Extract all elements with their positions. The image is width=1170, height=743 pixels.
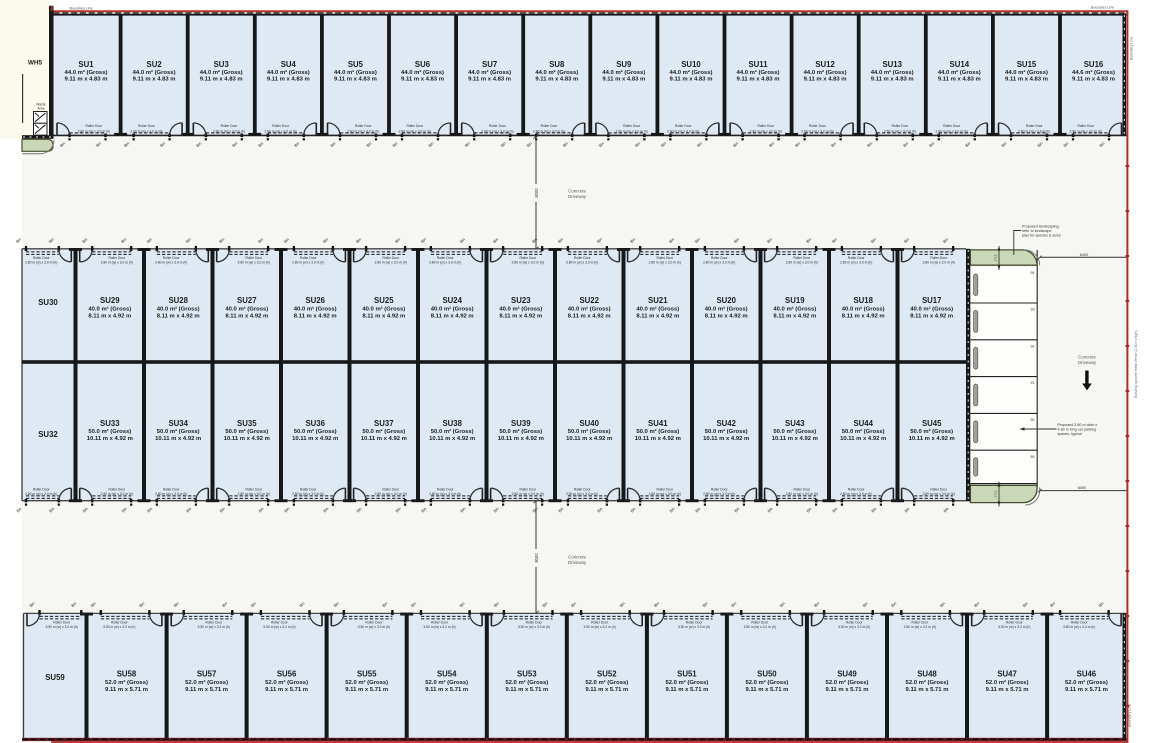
svg-text:2.60 m (w) x 3.0 m (h): 2.60 m (w) x 3.0 m (h) bbox=[935, 129, 967, 133]
svg-text:2.80 m (w) x 3.0 m (h): 2.80 m (w) x 3.0 m (h) bbox=[703, 492, 735, 496]
svg-text:Boundary Line: Boundary Line bbox=[1128, 704, 1132, 727]
svg-text:40.0 m² (Gross): 40.0 m² (Gross) bbox=[431, 305, 474, 312]
svg-text:SU28: SU28 bbox=[168, 296, 188, 305]
svg-text:8.11 m x 4.92 m: 8.11 m x 4.92 m bbox=[705, 314, 748, 320]
svg-text:9.11 m x 5.71 m: 9.11 m x 5.71 m bbox=[505, 687, 548, 693]
svg-text:SU13: SU13 bbox=[882, 60, 902, 69]
svg-text:50.0 m² (Gross): 50.0 m² (Gross) bbox=[705, 428, 748, 435]
svg-text:2.60 m (w) x 3.0 m (h): 2.60 m (w) x 3.0 m (h) bbox=[78, 129, 110, 133]
svg-text:Roller Door: Roller Door bbox=[656, 256, 674, 260]
svg-text:Boundary Line: Boundary Line bbox=[1091, 5, 1114, 9]
svg-text:52.0 m² (Gross): 52.0 m² (Gross) bbox=[986, 679, 1029, 686]
svg-text:10.11 m x 4.92 m: 10.11 m x 4.92 m bbox=[703, 436, 749, 442]
svg-text:Concrete: Concrete bbox=[568, 555, 586, 560]
svg-text:50.0 m² (Gross): 50.0 m² (Gross) bbox=[499, 428, 542, 435]
svg-text:9.11 m x 4.83 m: 9.11 m x 4.83 m bbox=[804, 77, 847, 83]
svg-text:Driveway: Driveway bbox=[568, 560, 587, 565]
svg-text:2.80 m (w) x 3.0 m (h): 2.80 m (w) x 3.0 m (h) bbox=[238, 260, 270, 264]
svg-text:SU40: SU40 bbox=[579, 419, 599, 428]
svg-text:SU26: SU26 bbox=[305, 296, 325, 305]
svg-text:Roller Door: Roller Door bbox=[431, 621, 449, 625]
svg-text:8.11 m x 4.92 m: 8.11 m x 4.92 m bbox=[499, 314, 542, 320]
svg-text:10.11 m x 4.92 m: 10.11 m x 4.92 m bbox=[224, 436, 270, 442]
svg-text:Roller Door: Roller Door bbox=[591, 621, 609, 625]
svg-text:40.0 m² (Gross): 40.0 m² (Gross) bbox=[910, 305, 953, 312]
svg-text:Roller Door: Roller Door bbox=[848, 487, 866, 491]
svg-text:10.11 m x 4.92 m: 10.11 m x 4.92 m bbox=[566, 436, 612, 442]
svg-text:SU11: SU11 bbox=[748, 60, 768, 69]
svg-text:3.50 m (w) x 3.2 m (h): 3.50 m (w) x 3.2 m (h) bbox=[263, 625, 295, 629]
svg-text:89: 89 bbox=[1031, 455, 1035, 459]
svg-text:44.0 m² (Gross): 44.0 m² (Gross) bbox=[804, 69, 847, 76]
svg-text:10.11 m x 4.92 m: 10.11 m x 4.92 m bbox=[429, 436, 475, 442]
svg-text:2.80 m (w) x 3.0 m (h): 2.80 m (w) x 3.0 m (h) bbox=[566, 492, 598, 496]
svg-text:8.11 m x 4.92 m: 8.11 m x 4.92 m bbox=[431, 314, 474, 320]
svg-text:50.0 m² (Gross): 50.0 m² (Gross) bbox=[568, 428, 611, 435]
svg-text:SU1: SU1 bbox=[78, 60, 94, 69]
svg-text:50.0 m² (Gross): 50.0 m² (Gross) bbox=[294, 428, 337, 435]
svg-text:2.80 m (w) x 3.0 m (h): 2.80 m (w) x 3.0 m (h) bbox=[512, 492, 544, 496]
svg-text:52.0 m² (Gross): 52.0 m² (Gross) bbox=[585, 679, 628, 686]
svg-text:Roller Door: Roller Door bbox=[574, 487, 592, 491]
svg-text:9.11 m x 5.71 m: 9.11 m x 5.71 m bbox=[906, 687, 949, 693]
svg-text:9.11 m x 5.71 m: 9.11 m x 5.71 m bbox=[585, 687, 628, 693]
svg-text:10.11 m x 4.92 m: 10.11 m x 4.92 m bbox=[155, 436, 201, 442]
svg-text:93: 93 bbox=[1031, 308, 1035, 312]
svg-text:SU41: SU41 bbox=[648, 419, 668, 428]
svg-text:SU8: SU8 bbox=[549, 60, 565, 69]
svg-text:Driveway: Driveway bbox=[568, 194, 587, 199]
svg-text:44.0 m² (Gross): 44.0 m² (Gross) bbox=[334, 69, 377, 76]
svg-text:Roller Door: Roller Door bbox=[623, 124, 641, 128]
svg-text:SU39: SU39 bbox=[511, 419, 531, 428]
svg-text:SU12: SU12 bbox=[815, 60, 835, 69]
svg-text:9.11 m x 4.83 m: 9.11 m x 4.83 m bbox=[200, 77, 243, 83]
svg-text:6400: 6400 bbox=[1078, 486, 1086, 490]
svg-text:40.0 m² (Gross): 40.0 m² (Gross) bbox=[88, 305, 131, 312]
svg-text:44.0 m² (Gross): 44.0 m² (Gross) bbox=[133, 69, 176, 76]
svg-text:44.0 m² (Gross): 44.0 m² (Gross) bbox=[1005, 69, 1048, 76]
svg-text:Proposed 2.60 m wide x: Proposed 2.60 m wide x bbox=[1058, 423, 1098, 427]
svg-text:91: 91 bbox=[1031, 381, 1035, 385]
svg-text:Roller Door: Roller Door bbox=[911, 621, 929, 625]
svg-text:40.0 m² (Gross): 40.0 m² (Gross) bbox=[294, 305, 337, 312]
svg-text:50.0 m² (Gross): 50.0 m² (Gross) bbox=[157, 428, 200, 435]
svg-text:52.0 m² (Gross): 52.0 m² (Gross) bbox=[1065, 679, 1108, 686]
svg-text:44.0 m² (Gross): 44.0 m² (Gross) bbox=[65, 69, 108, 76]
svg-text:3.50 m (w) x 3.2 m (h): 3.50 m (w) x 3.2 m (h) bbox=[518, 625, 550, 629]
svg-text:Roller Door: Roller Door bbox=[943, 124, 961, 128]
svg-text:9.11 m x 5.71 m: 9.11 m x 5.71 m bbox=[425, 687, 468, 693]
svg-text:SU14: SU14 bbox=[950, 60, 970, 69]
svg-text:SU4: SU4 bbox=[281, 60, 297, 69]
svg-text:52.0 m² (Gross): 52.0 m² (Gross) bbox=[665, 679, 708, 686]
svg-text:2.80 m (w) x 3.0 m (h): 2.80 m (w) x 3.0 m (h) bbox=[375, 260, 407, 264]
svg-text:SU27: SU27 bbox=[237, 296, 257, 305]
svg-text:90: 90 bbox=[1031, 418, 1035, 422]
svg-text:40.0 m² (Gross): 40.0 m² (Gross) bbox=[842, 305, 885, 312]
svg-text:WH5: WH5 bbox=[28, 60, 43, 67]
svg-text:3.50 m (w) x 3.2 m (h): 3.50 m (w) x 3.2 m (h) bbox=[46, 625, 78, 629]
svg-text:44.6 m² (Gross): 44.6 m² (Gross) bbox=[1072, 69, 1115, 76]
svg-text:SU50: SU50 bbox=[757, 670, 777, 679]
svg-text:Roller Door: Roller Door bbox=[163, 487, 181, 491]
svg-text:3.50 m (w) x 3.2 m (h): 3.50 m (w) x 3.2 m (h) bbox=[998, 625, 1030, 629]
svg-text:SU47: SU47 bbox=[997, 670, 1017, 679]
svg-text:9.11 m x 4.83 m: 9.11 m x 4.83 m bbox=[1005, 77, 1048, 83]
svg-text:10.11 m x 4.92 m: 10.11 m x 4.92 m bbox=[909, 436, 955, 442]
svg-text:2.80 m (w) x 3.0 m (h): 2.80 m (w) x 3.0 m (h) bbox=[649, 260, 681, 264]
svg-text:SU44: SU44 bbox=[853, 419, 873, 428]
svg-text:SU20: SU20 bbox=[716, 296, 736, 305]
svg-text:2.60 m (w) x 3.0 m (h): 2.60 m (w) x 3.0 m (h) bbox=[130, 129, 162, 133]
svg-text:2.80 m (w) x 3.0 m (h): 2.80 m (w) x 3.0 m (h) bbox=[649, 492, 681, 496]
svg-text:Roller Door: Roller Door bbox=[300, 487, 318, 491]
svg-text:SU51: SU51 bbox=[677, 670, 697, 679]
svg-text:8.11 m x 4.92 m: 8.11 m x 4.92 m bbox=[842, 314, 885, 320]
svg-text:2.60 m (w) x 3.0 m (h): 2.60 m (w) x 3.0 m (h) bbox=[884, 129, 916, 133]
svg-text:8000: 8000 bbox=[534, 188, 539, 198]
svg-text:9.11 m x 4.83 m: 9.11 m x 4.83 m bbox=[334, 77, 377, 83]
svg-text:Roller Door: Roller Door bbox=[382, 487, 400, 491]
svg-text:Roller Door: Roller Door bbox=[1071, 621, 1089, 625]
svg-text:Roller Door: Roller Door bbox=[85, 124, 103, 128]
svg-text:44.0 m² (Gross): 44.0 m² (Gross) bbox=[468, 69, 511, 76]
svg-text:Proposed landscaping,: Proposed landscaping, bbox=[1022, 225, 1060, 229]
svg-text:3.50 m (w) x 3.2 m (h): 3.50 m (w) x 3.2 m (h) bbox=[678, 625, 710, 629]
svg-text:2.60 m (w) x 3.0 m (h): 2.60 m (w) x 3.0 m (h) bbox=[213, 129, 245, 133]
svg-text:Roller Door: Roller Door bbox=[930, 487, 948, 491]
svg-text:2.80 m (w) x 3.0 m (h): 2.80 m (w) x 3.0 m (h) bbox=[25, 492, 57, 496]
svg-text:SU30: SU30 bbox=[38, 298, 58, 307]
svg-text:SU48: SU48 bbox=[917, 670, 937, 679]
svg-text:Boundary Line: Boundary Line bbox=[1130, 37, 1134, 60]
svg-text:2.60 m (w) x 3.0 m (h): 2.60 m (w) x 3.0 m (h) bbox=[1018, 129, 1050, 133]
svg-text:2.80 m (w) x 3.0 m (h): 2.80 m (w) x 3.0 m (h) bbox=[429, 492, 461, 496]
svg-text:Roller Door: Roller Door bbox=[108, 487, 126, 491]
svg-text:2.80 m (w) x 3.0 m (h): 2.80 m (w) x 3.0 m (h) bbox=[292, 492, 324, 496]
svg-text:Roller Door: Roller Door bbox=[437, 256, 455, 260]
svg-text:8.11 m x 4.92 m: 8.11 m x 4.92 m bbox=[773, 314, 816, 320]
svg-text:9.11 m x 5.71 m: 9.11 m x 5.71 m bbox=[826, 687, 869, 693]
svg-text:8.11 m x 4.92 m: 8.11 m x 4.92 m bbox=[636, 314, 679, 320]
svg-text:SU58: SU58 bbox=[117, 670, 137, 679]
svg-text:Roller Door: Roller Door bbox=[489, 124, 507, 128]
svg-text:8.11 m x 4.92 m: 8.11 m x 4.92 m bbox=[88, 314, 131, 320]
svg-text:2.80 m (w) x 3.0 m (h): 2.80 m (w) x 3.0 m (h) bbox=[786, 260, 818, 264]
svg-text:Roller Door: Roller Door bbox=[526, 621, 544, 625]
svg-text:SU15: SU15 bbox=[1017, 60, 1037, 69]
svg-text:2.60 m (w) x 3.0 m (h): 2.60 m (w) x 3.0 m (h) bbox=[801, 129, 833, 133]
svg-text:SU45: SU45 bbox=[922, 419, 942, 428]
svg-text:52.0 m² (Gross): 52.0 m² (Gross) bbox=[745, 679, 788, 686]
svg-text:2.60 m (w) x 3.0 m (h): 2.60 m (w) x 3.0 m (h) bbox=[667, 129, 699, 133]
svg-text:8.11 m x 4.92 m: 8.11 m x 4.92 m bbox=[157, 314, 200, 320]
svg-text:SU6: SU6 bbox=[415, 60, 431, 69]
svg-text:44.0 m² (Gross): 44.0 m² (Gross) bbox=[871, 69, 914, 76]
svg-text:Roller Door: Roller Door bbox=[930, 256, 948, 260]
svg-text:1712: 1712 bbox=[994, 254, 998, 261]
svg-text:2.80 m (w) x 3.0 m (h): 2.80 m (w) x 3.0 m (h) bbox=[840, 492, 872, 496]
svg-text:2.80 m (w) x 3.0 m (h): 2.80 m (w) x 3.0 m (h) bbox=[786, 492, 818, 496]
svg-text:50.0 m² (Gross): 50.0 m² (Gross) bbox=[910, 428, 953, 435]
svg-text:spaces, typical: spaces, typical bbox=[1058, 432, 1082, 436]
svg-text:10.11 m x 4.92 m: 10.11 m x 4.92 m bbox=[498, 436, 544, 442]
svg-text:2.80 m (w) x 3.0 m (h): 2.80 m (w) x 3.0 m (h) bbox=[375, 492, 407, 496]
svg-text:SU52: SU52 bbox=[597, 670, 617, 679]
svg-text:40.0 m² (Gross): 40.0 m² (Gross) bbox=[157, 305, 200, 312]
svg-text:1712: 1712 bbox=[994, 490, 998, 497]
svg-text:9.11 m x 4.83 m: 9.11 m x 4.83 m bbox=[267, 77, 310, 83]
svg-text:Roller Door: Roller Door bbox=[541, 124, 559, 128]
svg-text:SU9: SU9 bbox=[616, 60, 632, 69]
svg-text:40.0 m² (Gross): 40.0 m² (Gross) bbox=[636, 305, 679, 312]
svg-text:2.80 m (w) x 3.0 m (h): 2.80 m (w) x 3.0 m (h) bbox=[155, 492, 187, 496]
svg-text:9.11 m x 5.71 m: 9.11 m x 5.71 m bbox=[986, 687, 1029, 693]
svg-text:44.0 m² (Gross): 44.0 m² (Gross) bbox=[401, 69, 444, 76]
svg-text:52.0 m² (Gross): 52.0 m² (Gross) bbox=[345, 679, 388, 686]
svg-text:2.80 m (w) x 3.0 m (h): 2.80 m (w) x 3.0 m (h) bbox=[429, 260, 461, 264]
svg-text:Roller Door: Roller Door bbox=[574, 256, 592, 260]
svg-text:40.0 m² (Gross): 40.0 m² (Gross) bbox=[773, 305, 816, 312]
svg-text:2.80 m (w) x 3.0 m (h): 2.80 m (w) x 3.0 m (h) bbox=[292, 260, 324, 264]
svg-text:Roller Door: Roller Door bbox=[221, 124, 239, 128]
svg-text:2.80 m (w) x 3.0 m (h): 2.80 m (w) x 3.0 m (h) bbox=[923, 260, 955, 264]
svg-text:9.11 m x 4.83 m: 9.11 m x 4.83 m bbox=[670, 77, 713, 83]
svg-text:2.60 m (w) x 3.0 m (h): 2.60 m (w) x 3.0 m (h) bbox=[533, 129, 565, 133]
svg-text:3.50 m (w) x 3.2 m (h): 3.50 m (w) x 3.2 m (h) bbox=[358, 625, 390, 629]
svg-text:Concrete: Concrete bbox=[568, 189, 586, 194]
svg-text:SU17: SU17 bbox=[922, 296, 942, 305]
svg-text:3.50 m (w) x 3.2 m (h): 3.50 m (w) x 3.2 m (h) bbox=[583, 625, 615, 629]
svg-text:44.0 m² (Gross): 44.0 m² (Gross) bbox=[602, 69, 645, 76]
svg-text:40.0 m² (Gross): 40.0 m² (Gross) bbox=[362, 305, 405, 312]
svg-text:Roller Door: Roller Door bbox=[163, 256, 181, 260]
svg-text:8.11 m x 4.92 m: 8.11 m x 4.92 m bbox=[568, 314, 611, 320]
svg-text:SU7: SU7 bbox=[482, 60, 497, 69]
svg-text:Roller Door: Roller Door bbox=[846, 621, 864, 625]
svg-text:52.0 m² (Gross): 52.0 m² (Gross) bbox=[185, 679, 228, 686]
svg-text:9.11 m x 4.83 m: 9.11 m x 4.83 m bbox=[468, 77, 511, 83]
svg-text:8000: 8000 bbox=[534, 553, 539, 563]
svg-text:SU33: SU33 bbox=[100, 419, 120, 428]
svg-text:10.11 m x 4.92 m: 10.11 m x 4.92 m bbox=[361, 436, 407, 442]
svg-text:9.11 m x 5.71 m: 9.11 m x 5.71 m bbox=[345, 687, 388, 693]
svg-text:Roller Door: Roller Door bbox=[33, 487, 51, 491]
svg-text:SU18: SU18 bbox=[853, 296, 873, 305]
svg-text:SU57: SU57 bbox=[197, 670, 217, 679]
svg-text:9.11 m x 5.71 m: 9.11 m x 5.71 m bbox=[185, 687, 228, 693]
svg-text:Roller Door: Roller Door bbox=[519, 256, 537, 260]
svg-text:2.60 m (w) x 3.0 m (h): 2.60 m (w) x 3.0 m (h) bbox=[481, 129, 513, 133]
svg-text:SU25: SU25 bbox=[374, 296, 394, 305]
svg-text:2.80 m (w) x 3.0 m (h): 2.80 m (w) x 3.0 m (h) bbox=[840, 260, 872, 264]
svg-text:9.11 m x 5.71 m: 9.11 m x 5.71 m bbox=[1065, 687, 1108, 693]
svg-text:SU2: SU2 bbox=[147, 60, 163, 69]
svg-text:Roller Door: Roller Door bbox=[519, 487, 537, 491]
svg-text:SU53: SU53 bbox=[517, 670, 537, 679]
svg-text:SU10: SU10 bbox=[681, 60, 701, 69]
svg-text:9.11 m x 4.83 m: 9.11 m x 4.83 m bbox=[1072, 77, 1115, 83]
svg-text:Roller Door: Roller Door bbox=[809, 124, 827, 128]
svg-text:2.80 m (w) x 3.0 m (h): 2.80 m (w) x 3.0 m (h) bbox=[25, 260, 57, 264]
svg-text:Roller Door: Roller Door bbox=[300, 256, 318, 260]
svg-text:Roller Door: Roller Door bbox=[711, 256, 729, 260]
svg-text:3.50 m (w) x 3.2 m (h): 3.50 m (w) x 3.2 m (h) bbox=[198, 625, 230, 629]
svg-text:Roller Door: Roller Door bbox=[686, 621, 704, 625]
svg-text:9.11 m x 5.71 m: 9.11 m x 5.71 m bbox=[265, 687, 308, 693]
svg-text:2.60 m (w) x 3.0 m (h): 2.60 m (w) x 3.0 m (h) bbox=[615, 129, 647, 133]
svg-text:6490: 6490 bbox=[1080, 253, 1088, 257]
svg-text:44.0 m² (Gross): 44.0 m² (Gross) bbox=[938, 69, 981, 76]
svg-text:3.50 m (w) x 3.2 m (h): 3.50 m (w) x 3.2 m (h) bbox=[423, 625, 455, 629]
svg-text:SU23: SU23 bbox=[511, 296, 531, 305]
svg-text:10.11 m x 4.92 m: 10.11 m x 4.92 m bbox=[840, 436, 886, 442]
svg-text:44.0 m² (Gross): 44.0 m² (Gross) bbox=[535, 69, 578, 76]
svg-text:2.80 m (w) x 3.0 m (h): 2.80 m (w) x 3.0 m (h) bbox=[566, 260, 598, 264]
svg-text:10.11 m x 4.92 m: 10.11 m x 4.92 m bbox=[87, 436, 133, 442]
svg-text:50.0 m² (Gross): 50.0 m² (Gross) bbox=[225, 428, 268, 435]
svg-text:50.0 m² (Gross): 50.0 m² (Gross) bbox=[431, 428, 474, 435]
svg-text:9.11 m x 4.83 m: 9.11 m x 4.83 m bbox=[871, 77, 914, 83]
svg-text:Roller Door: Roller Door bbox=[1026, 124, 1044, 128]
svg-text:3.50 m (w) x 3.2 m (h): 3.50 m (w) x 3.2 m (h) bbox=[1063, 625, 1095, 629]
svg-text:2.60 m (w) x 3.0 m (h): 2.60 m (w) x 3.0 m (h) bbox=[399, 129, 431, 133]
svg-text:2.80 m (w) x 3.0 m (h): 2.80 m (w) x 3.0 m (h) bbox=[101, 492, 133, 496]
svg-text:Roller Door: Roller Door bbox=[793, 256, 811, 260]
svg-text:Roller Door: Roller Door bbox=[366, 621, 384, 625]
svg-text:8.11 m x 4.92 m: 8.11 m x 4.92 m bbox=[910, 314, 953, 320]
svg-text:92: 92 bbox=[1031, 344, 1035, 348]
svg-text:44.0 m² (Gross): 44.0 m² (Gross) bbox=[200, 69, 243, 76]
svg-text:SU38: SU38 bbox=[442, 419, 462, 428]
svg-text:SU54: SU54 bbox=[437, 670, 457, 679]
svg-text:52.0 m² (Gross): 52.0 m² (Gross) bbox=[906, 679, 949, 686]
svg-text:2.80 m (w) x 3.0 m (h): 2.80 m (w) x 3.0 m (h) bbox=[512, 260, 544, 264]
svg-text:40.0 m² (Gross): 40.0 m² (Gross) bbox=[499, 305, 542, 312]
svg-text:2.80 m (w) x 3.0 m (h): 2.80 m (w) x 3.0 m (h) bbox=[238, 492, 270, 496]
svg-text:SU36: SU36 bbox=[305, 419, 325, 428]
svg-text:SU29: SU29 bbox=[100, 296, 120, 305]
svg-text:Concrete: Concrete bbox=[1078, 355, 1096, 360]
svg-text:plan for species & sizes: plan for species & sizes bbox=[1022, 234, 1061, 238]
svg-text:Roller Door: Roller Door bbox=[53, 621, 71, 625]
svg-text:50.0 m² (Gross): 50.0 m² (Gross) bbox=[842, 428, 885, 435]
svg-text:52.0 m² (Gross): 52.0 m² (Gross) bbox=[505, 679, 548, 686]
svg-text:9.11 m x 4.83 m: 9.11 m x 4.83 m bbox=[535, 77, 578, 83]
svg-text:40.0 m² (Gross): 40.0 m² (Gross) bbox=[705, 305, 748, 312]
svg-text:SU16: SU16 bbox=[1084, 60, 1104, 69]
svg-text:44.0 m² (Gross): 44.0 m² (Gross) bbox=[267, 69, 310, 76]
svg-text:2.80 m (w) x 3.0 m (h): 2.80 m (w) x 3.0 m (h) bbox=[101, 260, 133, 264]
svg-text:Roller Door: Roller Door bbox=[793, 487, 811, 491]
svg-text:SU5: SU5 bbox=[348, 60, 364, 69]
svg-text:Existing cyclone mesh fence (2: Existing cyclone mesh fence (2.50 m high… bbox=[1134, 330, 1138, 398]
svg-text:Roller Door: Roller Door bbox=[108, 256, 126, 260]
svg-text:Roller Door: Roller Door bbox=[382, 256, 400, 260]
svg-text:9.11 m x 5.71 m: 9.11 m x 5.71 m bbox=[105, 687, 148, 693]
svg-text:10.11 m x 4.92 m: 10.11 m x 4.92 m bbox=[292, 436, 338, 442]
svg-text:Roller Door: Roller Door bbox=[656, 487, 674, 491]
svg-text:Area: Area bbox=[37, 107, 44, 111]
svg-text:9.11 m x 5.71 m: 9.11 m x 5.71 m bbox=[665, 687, 708, 693]
svg-text:SU37: SU37 bbox=[374, 419, 394, 428]
svg-text:9.11 m x 4.83 m: 9.11 m x 4.83 m bbox=[938, 77, 981, 83]
svg-text:SU34: SU34 bbox=[168, 419, 188, 428]
svg-text:9.11 m x 4.83 m: 9.11 m x 4.83 m bbox=[602, 77, 645, 83]
svg-text:2.80 m (w) x 3.0 m (h): 2.80 m (w) x 3.0 m (h) bbox=[923, 492, 955, 496]
svg-text:9.11 m x 4.83 m: 9.11 m x 4.83 m bbox=[737, 77, 780, 83]
svg-text:SU42: SU42 bbox=[716, 419, 736, 428]
svg-text:9.11 m x 4.83 m: 9.11 m x 4.83 m bbox=[65, 77, 108, 83]
svg-text:3.50 m (w) x 3.2 m (h): 3.50 m (w) x 3.2 m (h) bbox=[904, 625, 936, 629]
svg-text:SU3: SU3 bbox=[214, 60, 230, 69]
svg-text:Roller Door: Roller Door bbox=[675, 124, 693, 128]
svg-text:Roller Door: Roller Door bbox=[437, 487, 455, 491]
svg-text:SU43: SU43 bbox=[785, 419, 805, 428]
svg-text:3.50 m (w) x 3.2 m (h): 3.50 m (w) x 3.2 m (h) bbox=[744, 625, 776, 629]
svg-text:Roller Door: Roller Door bbox=[271, 621, 289, 625]
svg-text:Roller Door: Roller Door bbox=[848, 256, 866, 260]
svg-text:8.11 m x 4.92 m: 8.11 m x 4.92 m bbox=[294, 314, 337, 320]
svg-text:Roller Door: Roller Door bbox=[1077, 124, 1095, 128]
svg-text:2.60 m (w) x 3.0 m (h): 2.60 m (w) x 3.0 m (h) bbox=[1070, 129, 1102, 133]
svg-text:10.11 m x 4.92 m: 10.11 m x 4.92 m bbox=[635, 436, 681, 442]
svg-text:9.11 m x 4.83 m: 9.11 m x 4.83 m bbox=[133, 77, 176, 83]
svg-text:2.80 m (w) x 3.0 m (h): 2.80 m (w) x 3.0 m (h) bbox=[703, 260, 735, 264]
svg-text:8.11 m x 4.92 m: 8.11 m x 4.92 m bbox=[362, 314, 405, 320]
svg-text:Roller Door: Roller Door bbox=[892, 124, 910, 128]
svg-text:Roller Door: Roller Door bbox=[205, 621, 223, 625]
svg-text:Roller Door: Roller Door bbox=[245, 256, 263, 260]
svg-text:52.0 m² (Gross): 52.0 m² (Gross) bbox=[425, 679, 468, 686]
svg-text:SU19: SU19 bbox=[785, 296, 805, 305]
svg-text:SU22: SU22 bbox=[579, 296, 599, 305]
svg-text:Roller Door: Roller Door bbox=[711, 487, 729, 491]
svg-text:52.0 m² (Gross): 52.0 m² (Gross) bbox=[826, 679, 869, 686]
svg-text:44.0 m² (Gross): 44.0 m² (Gross) bbox=[670, 69, 713, 76]
svg-text:94: 94 bbox=[1031, 271, 1035, 275]
svg-text:refer to landscape: refer to landscape bbox=[1022, 229, 1052, 233]
svg-text:Roller Door: Roller Door bbox=[272, 124, 290, 128]
svg-text:50.0 m² (Gross): 50.0 m² (Gross) bbox=[88, 428, 131, 435]
svg-text:3.50 m (w) x 3.2 m (h): 3.50 m (w) x 3.2 m (h) bbox=[103, 625, 135, 629]
svg-text:3.50 m (w) x 3.2 m (h): 3.50 m (w) x 3.2 m (h) bbox=[838, 625, 870, 629]
svg-text:Roller Door: Roller Door bbox=[406, 124, 424, 128]
svg-text:SU32: SU32 bbox=[38, 430, 58, 439]
svg-text:50.0 m² (Gross): 50.0 m² (Gross) bbox=[636, 428, 679, 435]
svg-text:Boundary Line: Boundary Line bbox=[70, 7, 93, 11]
svg-text:SU35: SU35 bbox=[237, 419, 257, 428]
svg-text:52.0 m² (Gross): 52.0 m² (Gross) bbox=[265, 679, 308, 686]
svg-text:SU46: SU46 bbox=[1077, 670, 1097, 679]
svg-text:Roller Door: Roller Door bbox=[355, 124, 373, 128]
svg-text:2.60 m (w) x 3.0 m (h): 2.60 m (w) x 3.0 m (h) bbox=[264, 129, 296, 133]
svg-text:Roller Door: Roller Door bbox=[1006, 621, 1024, 625]
svg-text:SU21: SU21 bbox=[648, 296, 668, 305]
svg-text:Roller Door: Roller Door bbox=[111, 621, 129, 625]
svg-text:Driveway: Driveway bbox=[1078, 360, 1097, 365]
svg-text:SU59: SU59 bbox=[45, 673, 65, 682]
svg-text:40.0 m² (Gross): 40.0 m² (Gross) bbox=[225, 305, 268, 312]
svg-text:9.11 m x 4.83 m: 9.11 m x 4.83 m bbox=[401, 77, 444, 83]
svg-text:SU24: SU24 bbox=[442, 296, 462, 305]
svg-text:8.11 m x 4.92 m: 8.11 m x 4.92 m bbox=[225, 314, 268, 320]
svg-text:44.0 m² (Gross): 44.0 m² (Gross) bbox=[737, 69, 780, 76]
svg-text:SU55: SU55 bbox=[357, 670, 377, 679]
svg-text:10.11 m x 4.92 m: 10.11 m x 4.92 m bbox=[772, 436, 818, 442]
svg-text:SU49: SU49 bbox=[837, 670, 857, 679]
